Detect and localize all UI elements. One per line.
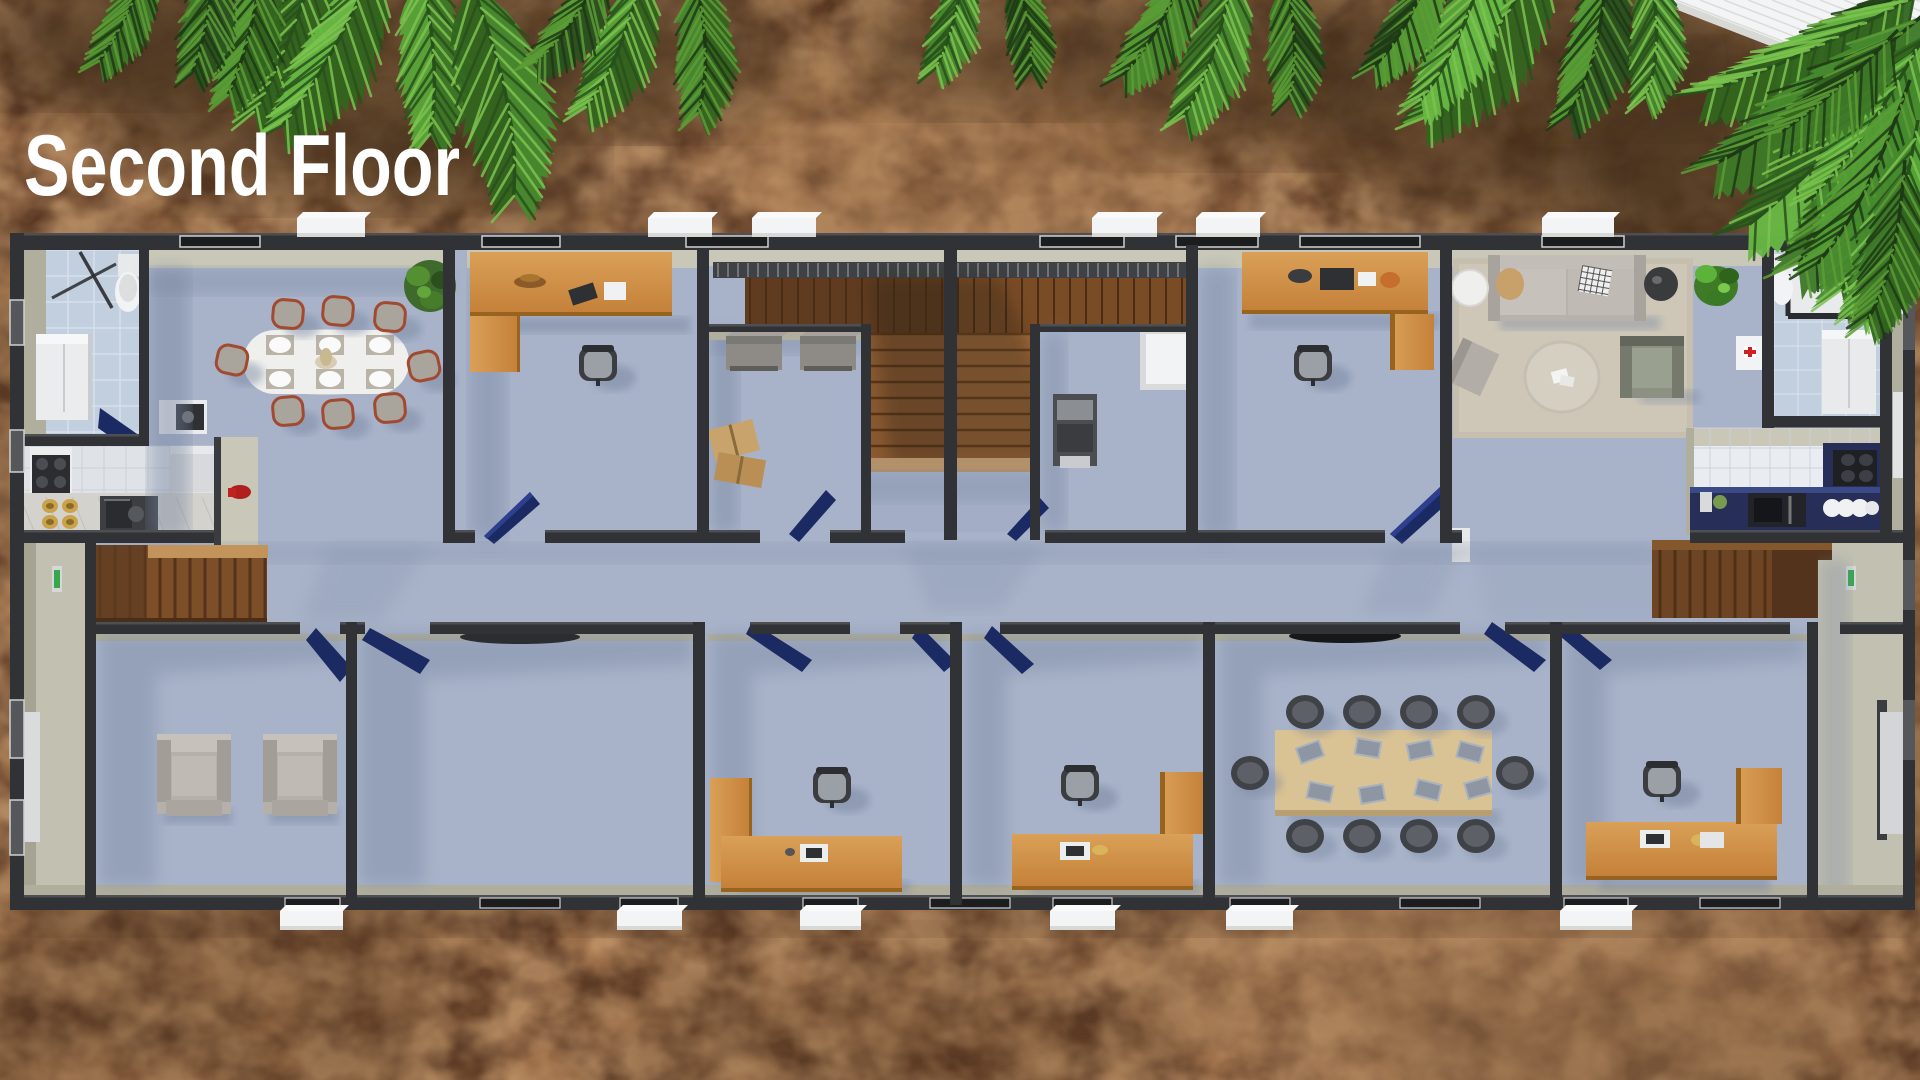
svg-text:Second Floor: Second Floor bbox=[24, 118, 460, 214]
